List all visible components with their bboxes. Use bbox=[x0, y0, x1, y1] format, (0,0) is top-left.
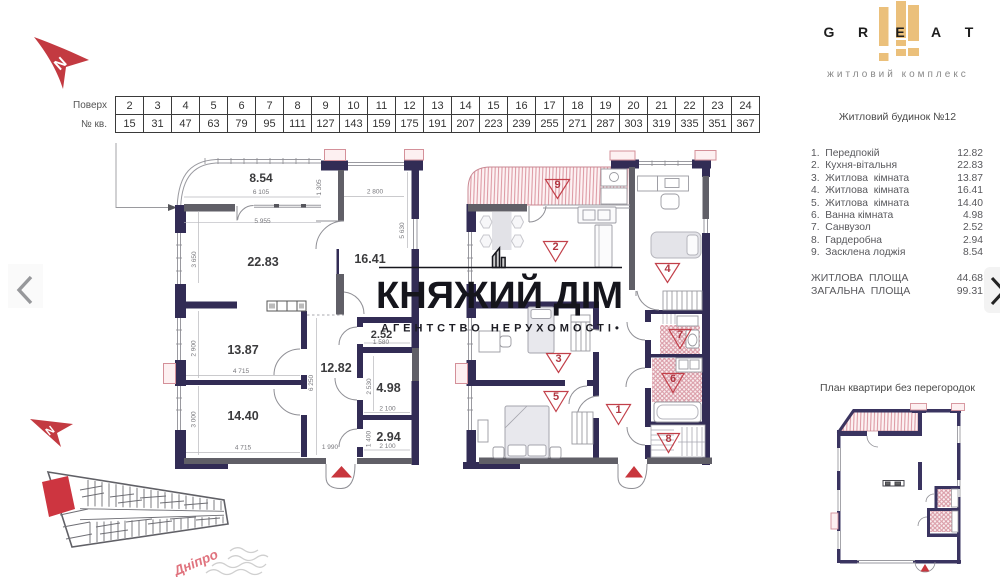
svg-text:12.82: 12.82 bbox=[320, 361, 351, 375]
svg-text:7: 7 bbox=[677, 329, 683, 341]
svg-text:2.94: 2.94 bbox=[376, 430, 400, 444]
svg-text:1: 1 bbox=[615, 404, 621, 416]
svg-text:2 900: 2 900 bbox=[191, 340, 198, 357]
svg-text:4: 4 bbox=[664, 263, 671, 275]
svg-text:E: E bbox=[895, 24, 904, 40]
svg-text:A: A bbox=[931, 24, 941, 40]
svg-text:5: 5 bbox=[553, 391, 559, 403]
svg-text:1 990: 1 990 bbox=[322, 444, 339, 451]
svg-text:1 580: 1 580 bbox=[373, 339, 390, 346]
svg-text:КНЯЖИЙ ДІМ: КНЯЖИЙ ДІМ bbox=[376, 272, 623, 317]
svg-text:житловий комплекс: житловий комплекс bbox=[827, 69, 969, 80]
svg-text:13.87: 13.87 bbox=[227, 343, 258, 357]
svg-text:2 100: 2 100 bbox=[379, 406, 396, 413]
svg-text:2 800: 2 800 bbox=[367, 189, 384, 196]
svg-text:6: 6 bbox=[670, 373, 676, 385]
svg-text:6 105: 6 105 bbox=[253, 189, 270, 196]
svg-text:5 955: 5 955 bbox=[254, 218, 271, 225]
svg-text:1 305: 1 305 bbox=[316, 179, 323, 196]
svg-text:4.98: 4.98 bbox=[376, 381, 400, 395]
svg-text:3: 3 bbox=[555, 353, 561, 365]
svg-text:R: R bbox=[858, 24, 868, 40]
svg-text:8.54: 8.54 bbox=[249, 171, 273, 185]
svg-text:АГЕНТСТВО НЕРУХОМОСТІ•: АГЕНТСТВО НЕРУХОМОСТІ• bbox=[381, 323, 623, 335]
svg-text:Дніпро: Дніпро bbox=[171, 547, 220, 577]
svg-text:2 100: 2 100 bbox=[379, 443, 396, 450]
svg-text:3 650: 3 650 bbox=[191, 251, 198, 268]
svg-text:8: 8 bbox=[665, 433, 671, 445]
svg-text:6 250: 6 250 bbox=[308, 374, 315, 391]
svg-text:2 530: 2 530 bbox=[366, 378, 373, 395]
svg-text:4 715: 4 715 bbox=[233, 368, 250, 375]
svg-text:T: T bbox=[965, 24, 974, 40]
svg-text:5 630: 5 630 bbox=[399, 222, 406, 239]
svg-text:G: G bbox=[824, 24, 835, 40]
svg-text:22.83: 22.83 bbox=[247, 255, 278, 269]
svg-text:9: 9 bbox=[554, 179, 560, 191]
svg-text:1 400: 1 400 bbox=[366, 430, 373, 447]
